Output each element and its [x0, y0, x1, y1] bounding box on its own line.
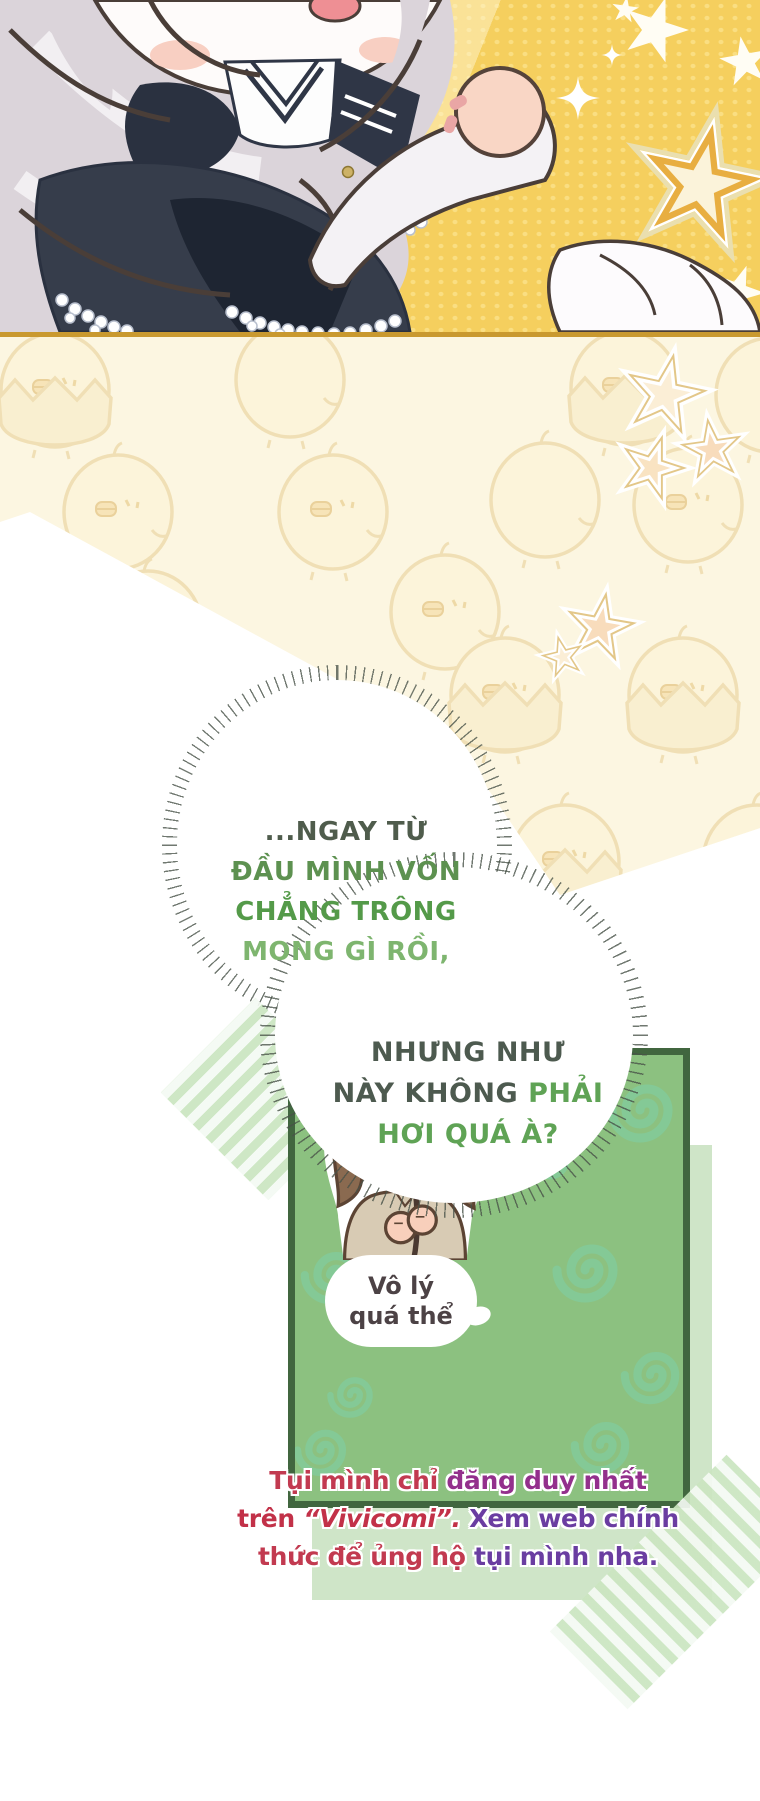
panel-divider	[0, 332, 760, 337]
top-panel	[0, 0, 760, 332]
credit-line-2: trên “Vivicomi”. Xem web chính	[78, 1500, 760, 1538]
baby-fist-icon	[456, 68, 544, 156]
speech-bubble-2-text: NHƯNG NHƯ NÀY KHÔNG PHẢI HƠI QUÁ À?	[298, 1032, 638, 1155]
bubble1-line: ĐẦU MÌNH VỐN	[188, 852, 504, 892]
bubble1-line: MONG GÌ RỒI,	[188, 932, 504, 972]
translator-credit: Tụi mình chỉ đăng duy nhất trên “Vivicom…	[78, 1462, 760, 1576]
chibi-character	[0, 0, 760, 332]
bubble2-line: NHƯNG NHƯ	[298, 1032, 638, 1073]
sticker-line-2: quá thể	[349, 1301, 453, 1331]
comic-page: ...NGAY TỪ ĐẦU MÌNH VỐN CHẲNG TRÔNG MONG…	[0, 0, 760, 1801]
bubble1-line: ...NGAY TỪ	[188, 812, 504, 852]
bubble2-line: HƠI QUÁ À?	[298, 1114, 638, 1155]
open-mouth	[310, 0, 360, 21]
speech-bubble-1-text: ...NGAY TỪ ĐẦU MÌNH VỐN CHẲNG TRÔNG MONG…	[188, 812, 504, 972]
outlined-star-icon	[614, 93, 760, 262]
credit-line-3: thức để ủng hộ tụi mình nha.	[78, 1538, 760, 1576]
top-panel-art	[0, 0, 760, 332]
bubble1-line: CHẲNG TRÔNG	[188, 892, 504, 932]
bubble2-line: NÀY KHÔNG PHẢI	[298, 1073, 638, 1114]
credit-line-1: Tụi mình chỉ đăng duy nhất	[78, 1462, 760, 1500]
sticker-line-1: Vô lý	[368, 1271, 434, 1301]
vo-ly-sticker-bubble: Vô lý quá thể	[325, 1255, 477, 1347]
